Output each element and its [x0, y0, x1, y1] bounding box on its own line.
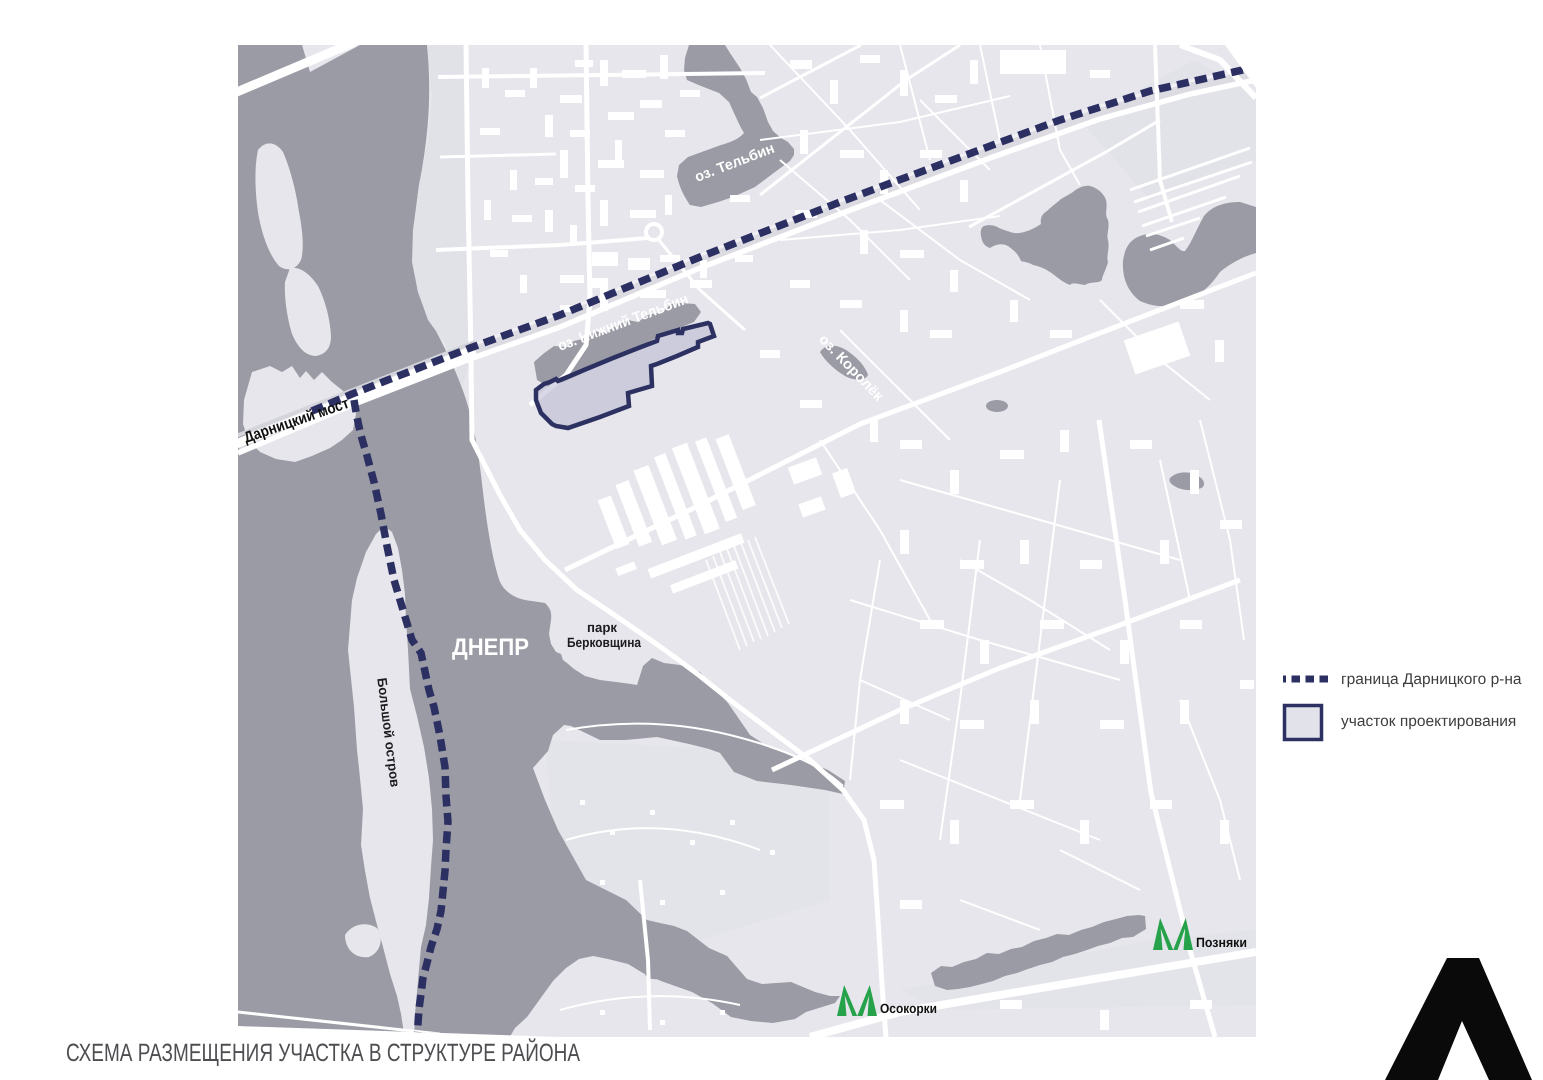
svg-text:граница Дарницкого р-на: граница Дарницкого р-на [1341, 671, 1522, 688]
svg-text:парк: парк [587, 620, 617, 635]
svg-text:Осокорки: Осокорки [880, 1001, 937, 1016]
svg-text:Берковщина: Берковщина [567, 635, 641, 650]
svg-text:Позняки: Позняки [1196, 935, 1247, 950]
svg-text:СХЕМА РАЗМЕЩЕНИЯ УЧАСТКА В СТР: СХЕМА РАЗМЕЩЕНИЯ УЧАСТКА В СТРУКТУРЕ РАЙ… [66, 1038, 580, 1067]
svg-text:участок проектирования: участок проектирования [1341, 713, 1516, 730]
svg-text:ДНЕПР: ДНЕПР [452, 634, 529, 661]
